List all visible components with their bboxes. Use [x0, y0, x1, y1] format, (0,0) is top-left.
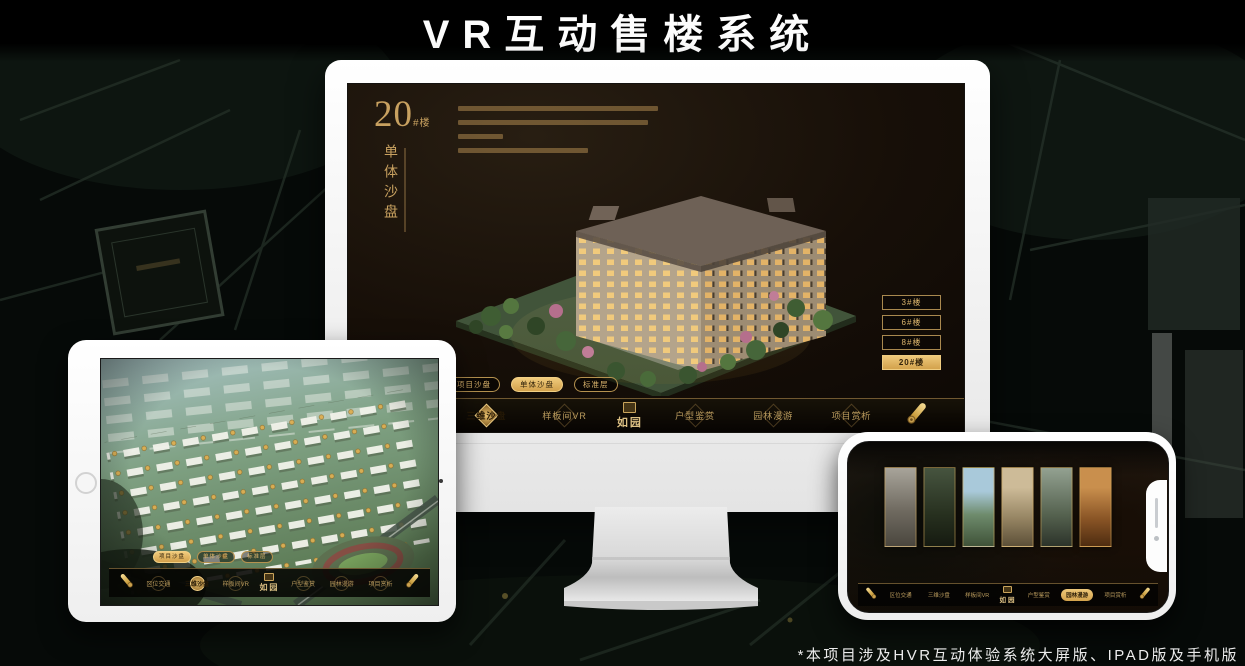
nav-item-label: 园林漫游 — [1066, 591, 1088, 599]
nav-item-label: 园林漫游 — [330, 579, 354, 588]
monitor-nav-logo[interactable]: 如园 — [617, 402, 643, 430]
footnote-text: *本项目涉及HVR互动体验系统大屏版、IPAD版及手机版 — [798, 644, 1239, 665]
nav-item-garden-tour[interactable]: 园林漫游 — [1061, 589, 1093, 601]
nav-item-3d-sandtable[interactable]: 三维沙盘 — [923, 589, 955, 601]
tablet-nav-logo[interactable]: 如园 — [259, 573, 279, 593]
nav-item-3d-sandtable[interactable]: 三维沙盘 — [460, 399, 512, 432]
scroll-menu-icon[interactable] — [1138, 586, 1152, 605]
text-line — [458, 106, 658, 111]
nav-item-label: 三维沙盘 — [185, 579, 209, 588]
tab-standard-floor[interactable]: 标准层 — [574, 377, 618, 392]
nav-item-garden-tour[interactable]: 园林漫游 — [747, 399, 799, 432]
nav-item-floorplans[interactable]: 户型鉴赏 — [1023, 589, 1055, 601]
nav-item-project-gallery[interactable]: 项目赏析 — [1099, 589, 1131, 601]
monitor-stand — [540, 505, 790, 620]
nav-item-label: 样板间VR — [223, 579, 249, 588]
gallery-panel[interactable] — [1002, 467, 1034, 547]
phone-screen: 区位交通 三维沙盘 样板间VR 如园 户型鉴赏 园林漫游 项目赏析 — [847, 441, 1169, 613]
tablet-mockup: 项目沙盘 单体沙盘 标准层 区位交通 三维沙盘 样板间VR — [68, 340, 456, 622]
phone-nav-logo[interactable]: 如园 — [999, 586, 1016, 604]
nav-item-showroom-vr[interactable]: 样板间VR — [221, 569, 251, 597]
scroll-menu-icon[interactable] — [904, 400, 930, 431]
scroll-menu-icon[interactable] — [404, 572, 421, 594]
tab-standard-floor[interactable]: 标准层 — [241, 551, 273, 563]
nav-item-label: 项目赏析 — [368, 579, 392, 588]
building-button-3[interactable]: 3#楼 — [882, 295, 941, 310]
logo-text: 如园 — [999, 594, 1016, 604]
phone-bottom-nav: 区位交通 三维沙盘 样板间VR 如园 户型鉴赏 园林漫游 项目赏析 — [858, 583, 1158, 606]
nav-item-showroom-vr[interactable]: 样板间VR — [961, 589, 993, 601]
nav-item-project-gallery[interactable]: 项目赏析 — [366, 569, 396, 597]
gallery-panel[interactable] — [1041, 467, 1073, 547]
nav-item-label: 户型鉴赏 — [1028, 591, 1050, 599]
gallery-panel[interactable] — [963, 467, 995, 547]
seal-icon — [623, 402, 636, 413]
nav-item-label: 园林漫游 — [753, 409, 793, 422]
gallery-panel[interactable] — [1080, 467, 1112, 547]
camera-icon — [439, 479, 443, 483]
tablet-screen: 项目沙盘 单体沙盘 标准层 区位交通 三维沙盘 样板间VR — [100, 358, 439, 606]
view-tabs: 项目沙盘 单体沙盘 标准层 — [448, 377, 618, 392]
nav-item-label: 区位交通 — [146, 579, 170, 588]
tab-single-sandtable[interactable]: 单体沙盘 — [511, 377, 563, 392]
nav-item-label: 样板间VR — [965, 591, 989, 599]
phone-notch — [1146, 480, 1167, 572]
unit-title: 20#楼 — [374, 96, 431, 133]
scroll-menu-icon[interactable] — [118, 572, 135, 594]
building-button-8[interactable]: 8#楼 — [882, 335, 941, 350]
gallery-panel[interactable] — [924, 467, 956, 547]
building-render — [436, 136, 876, 396]
tab-single-sandtable[interactable]: 单体沙盘 — [197, 551, 235, 563]
nav-item-location[interactable]: 区位交通 — [143, 569, 173, 597]
tab-project-sandtable[interactable]: 项目沙盘 — [153, 551, 191, 563]
home-button[interactable] — [75, 472, 97, 494]
nav-item-project-gallery[interactable]: 项目赏析 — [826, 399, 878, 432]
speaker-icon — [1155, 498, 1158, 528]
scroll-menu-icon[interactable] — [864, 586, 878, 605]
tablet-bottom-nav: 区位交通 三维沙盘 样板间VR 如园 户型鉴赏 园林漫游 — [109, 568, 430, 597]
building-button-20[interactable]: 20#楼 — [882, 355, 941, 370]
unit-title-vertical: 单体沙盘 — [379, 144, 399, 264]
nav-item-showroom-vr[interactable]: 样板间VR — [539, 399, 591, 432]
nav-item-label: 项目赏析 — [832, 409, 872, 422]
nav-item-garden-tour[interactable]: 园林漫游 — [327, 569, 357, 597]
tablet-view-tabs: 项目沙盘 单体沙盘 标准层 — [153, 551, 273, 563]
unit-number: 20 — [374, 94, 413, 135]
page-title: VR互动售楼系统 — [0, 2, 1245, 60]
nav-item-label: 三维沙盘 — [466, 409, 506, 422]
seal-icon — [264, 573, 274, 581]
nav-item-label: 项目赏析 — [1104, 591, 1126, 599]
text-line — [458, 120, 648, 125]
nav-item-3d-sandtable[interactable]: 三维沙盘 — [182, 569, 212, 597]
title-divider — [404, 148, 406, 232]
unit-number-suffix: #楼 — [413, 118, 431, 129]
nav-item-floorplans[interactable]: 户型鉴赏 — [288, 569, 318, 597]
nav-item-label: 样板间VR — [542, 409, 587, 422]
camera-icon — [1154, 536, 1159, 541]
nav-item-label: 三维沙盘 — [928, 591, 950, 599]
panorama-gallery — [885, 467, 1112, 547]
nav-item-label: 区位交通 — [890, 591, 912, 599]
seal-icon — [1003, 586, 1012, 593]
nav-item-floorplans[interactable]: 户型鉴赏 — [669, 399, 721, 432]
phone-mockup: 区位交通 三维沙盘 样板间VR 如园 户型鉴赏 园林漫游 项目赏析 — [838, 432, 1176, 620]
nav-item-label: 户型鉴赏 — [675, 409, 715, 422]
nav-item-location[interactable]: 区位交通 — [885, 589, 917, 601]
logo-text: 如园 — [617, 414, 643, 430]
building-button-6[interactable]: 6#楼 — [882, 315, 941, 330]
logo-text: 如园 — [259, 582, 279, 593]
building-selector: 3#楼 6#楼 8#楼 20#楼 — [882, 295, 941, 370]
gallery-panel[interactable] — [885, 467, 917, 547]
nav-item-label: 户型鉴赏 — [291, 579, 315, 588]
